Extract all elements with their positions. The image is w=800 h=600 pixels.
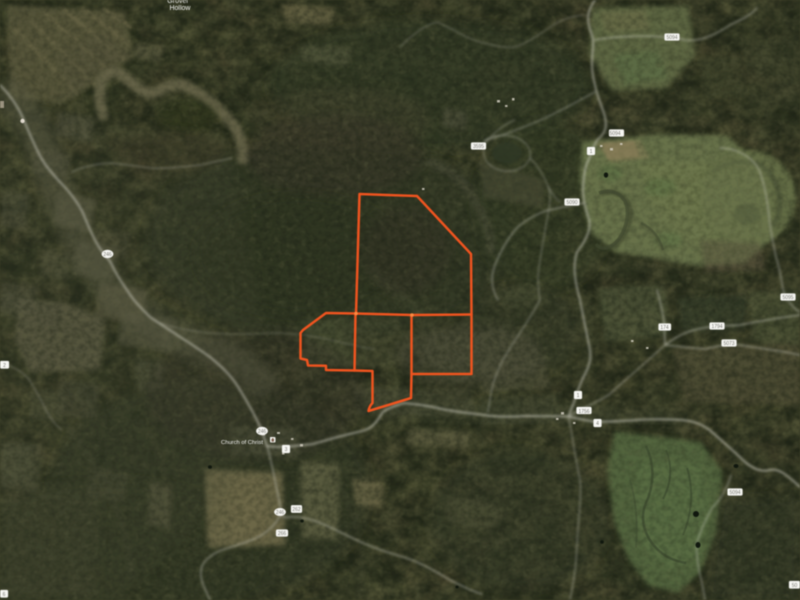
svg-text:262: 262: [292, 507, 301, 513]
svg-text:Church of Christ: Church of Christ: [221, 440, 263, 446]
svg-text:3: 3: [285, 447, 288, 453]
svg-text:5094: 5094: [666, 35, 677, 41]
svg-text:50: 50: [792, 583, 798, 589]
svg-text:266: 266: [278, 531, 287, 537]
svg-text:5094: 5094: [609, 131, 620, 137]
svg-text:1756: 1756: [578, 409, 589, 415]
svg-text:5090: 5090: [566, 200, 577, 206]
svg-text:4: 4: [596, 421, 599, 427]
svg-text:2: 2: [3, 363, 6, 369]
svg-text:1: 1: [590, 149, 593, 155]
svg-text:Hollow: Hollow: [169, 5, 191, 12]
svg-text:5095: 5095: [782, 295, 793, 301]
svg-text:1: 1: [577, 393, 580, 399]
svg-text:6: 6: [3, 592, 6, 598]
svg-text:5073: 5073: [723, 341, 734, 347]
svg-text:5094: 5094: [729, 490, 740, 496]
svg-text:1794: 1794: [711, 324, 722, 330]
svg-text:174: 174: [660, 325, 669, 331]
svg-text:3595: 3595: [473, 144, 484, 150]
svg-text:246: 246: [258, 429, 267, 435]
svg-text:246: 246: [103, 252, 112, 258]
svg-text:246: 246: [276, 510, 285, 516]
